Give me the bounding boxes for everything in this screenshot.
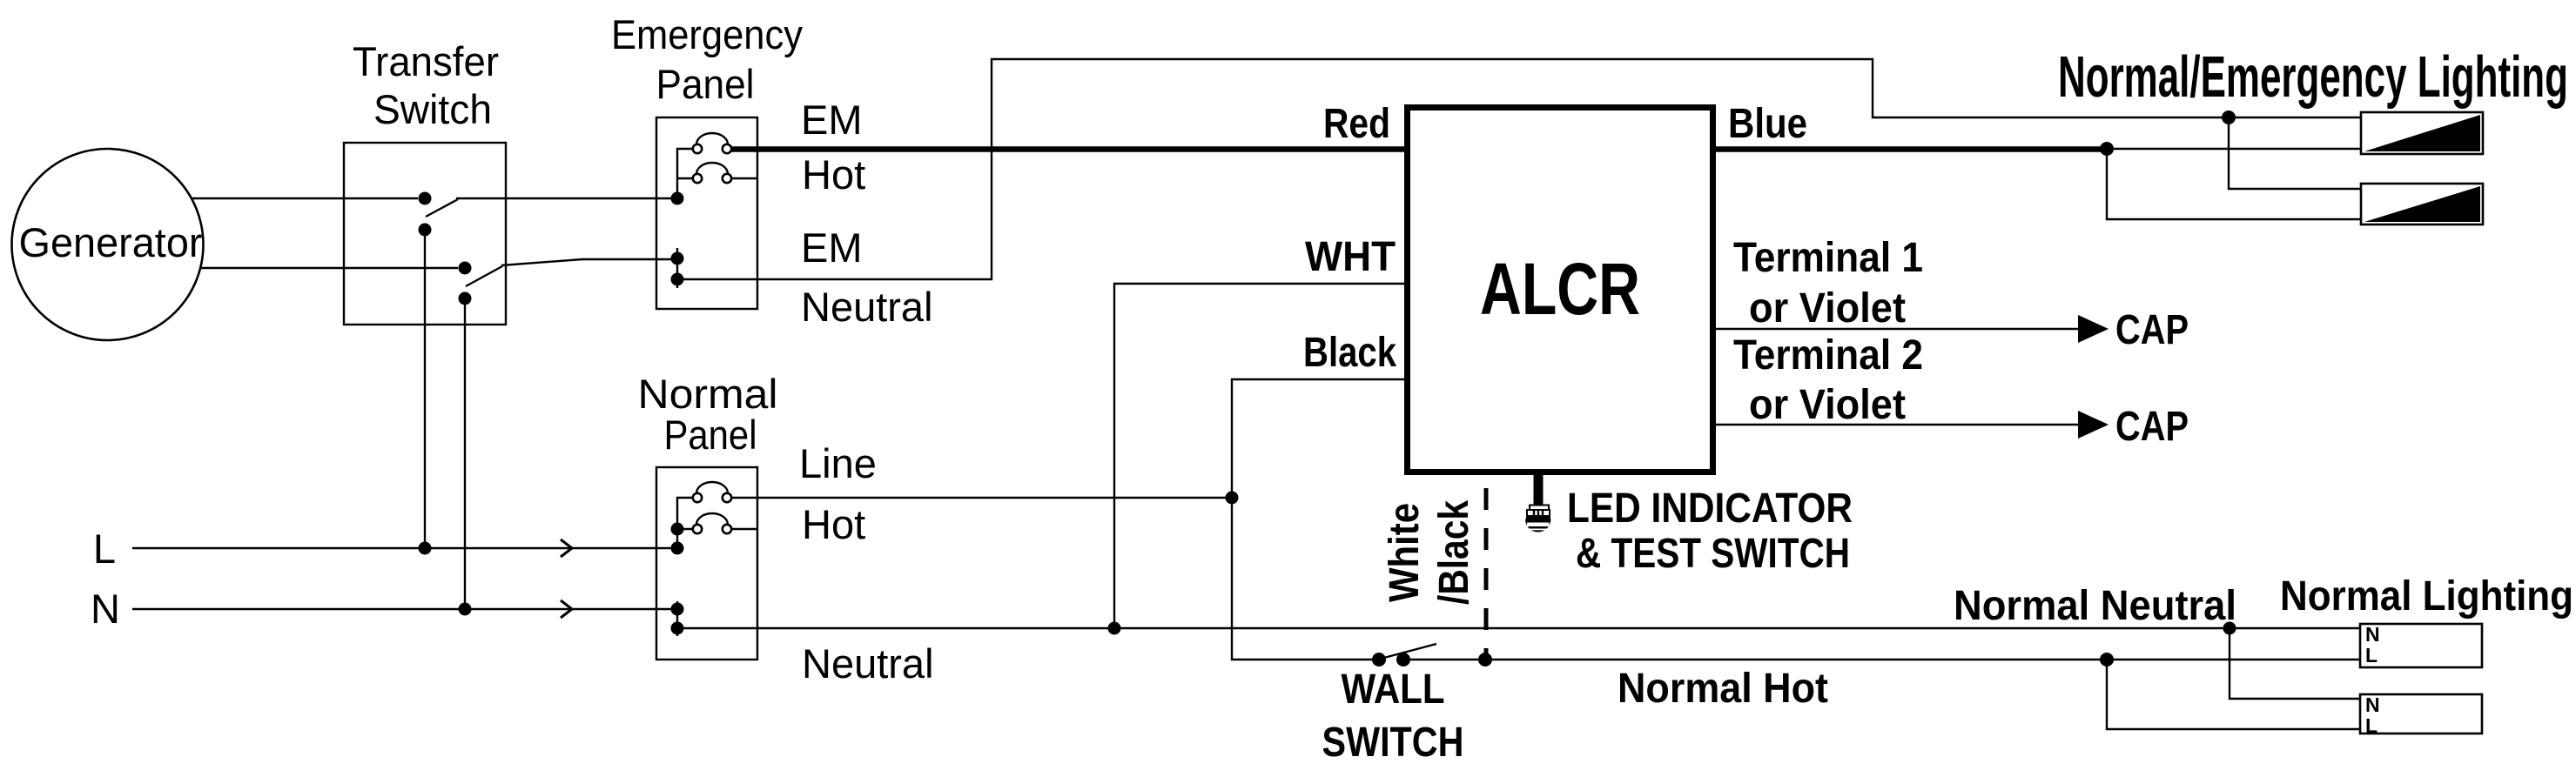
svg-text:Hot: Hot: [802, 151, 865, 198]
svg-text:ALCR: ALCR: [1480, 248, 1640, 330]
svg-text:Transfer: Transfer: [353, 38, 499, 84]
svg-text:Terminal 1: Terminal 1: [1733, 235, 1923, 281]
svg-text:N: N: [91, 586, 120, 632]
svg-text:Normal: Normal: [638, 371, 778, 417]
svg-text:N: N: [2365, 693, 2380, 716]
svg-text:& TEST SWITCH: & TEST SWITCH: [1576, 531, 1850, 577]
svg-text:Emergency: Emergency: [611, 11, 803, 57]
svg-text:or Violet: or Violet: [1749, 382, 1906, 428]
svg-text:Neutral: Neutral: [801, 284, 933, 330]
svg-text:Hot: Hot: [802, 501, 865, 547]
svg-text:CAP: CAP: [2115, 307, 2189, 353]
svg-text:Red: Red: [1323, 101, 1390, 147]
svg-text:Panel: Panel: [664, 412, 757, 458]
svg-text:White: White: [1382, 503, 1428, 602]
svg-text:Panel: Panel: [656, 61, 755, 107]
svg-text:EM: EM: [801, 224, 863, 271]
svg-text:L: L: [93, 526, 116, 572]
svg-text:or Violet: or Violet: [1749, 285, 1906, 332]
svg-text:Switch: Switch: [373, 86, 492, 132]
svg-text:Normal Hot: Normal Hot: [1618, 666, 1828, 712]
svg-text:Normal/Emergency Lighting: Normal/Emergency Lighting: [2058, 44, 2568, 110]
svg-text:L: L: [2365, 644, 2378, 666]
svg-text:Neutral: Neutral: [802, 640, 934, 687]
svg-text:Blue: Blue: [1728, 101, 1807, 147]
svg-text:Generator: Generator: [19, 219, 203, 265]
svg-text:LED INDICATOR: LED INDICATOR: [1567, 486, 1853, 532]
svg-text:CAP: CAP: [2115, 404, 2189, 450]
svg-text:L: L: [2365, 714, 2378, 737]
svg-text:Black: Black: [1303, 330, 1396, 376]
svg-text:Line: Line: [799, 440, 877, 486]
svg-text:WHT: WHT: [1305, 234, 1396, 280]
svg-text:N: N: [2365, 623, 2380, 646]
svg-text:/Black: /Black: [1431, 500, 1477, 605]
svg-text:Terminal 2: Terminal 2: [1733, 332, 1923, 378]
svg-text:EM: EM: [801, 97, 863, 143]
svg-text:Normal Neutral: Normal Neutral: [1954, 583, 2236, 629]
svg-text:SWITCH: SWITCH: [1322, 720, 1464, 766]
svg-text:WALL: WALL: [1342, 666, 1445, 713]
svg-text:Normal Lighting: Normal Lighting: [2280, 573, 2573, 620]
